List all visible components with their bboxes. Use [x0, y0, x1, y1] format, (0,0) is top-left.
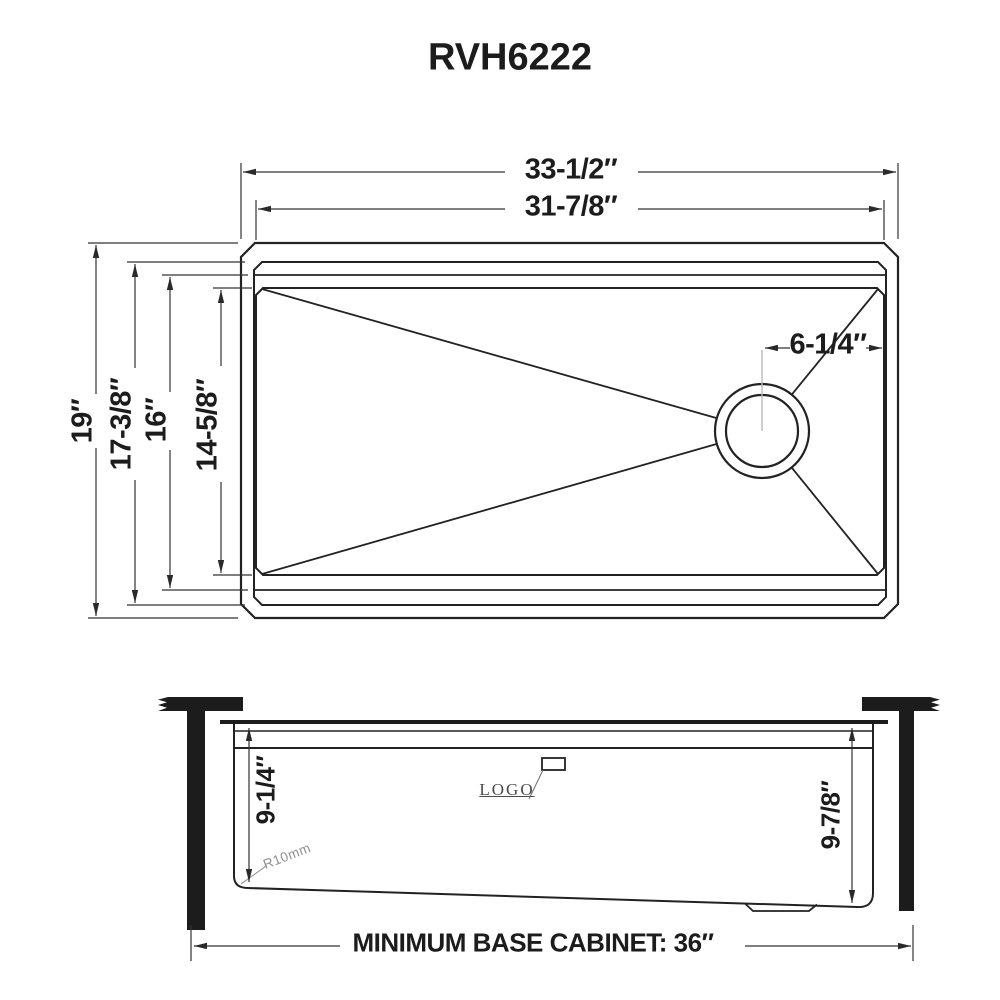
model-number: RVH6222: [428, 37, 592, 80]
top-view: [241, 243, 898, 618]
logo-label: LOGO: [479, 780, 534, 800]
sink-rim-side: [220, 720, 888, 724]
dim-bowl-depth: 14-5/8″: [192, 379, 225, 472]
dim-outer-depth: 19″: [67, 399, 100, 444]
countertop-left: [158, 697, 243, 711]
cabinet-wall-right: [899, 711, 914, 911]
dim-bowl-depth-left: 9-1/4″: [251, 756, 282, 825]
cabinet-wall-left: [187, 711, 205, 930]
logo-plate: [542, 758, 565, 770]
sink-dimension-diagram: RVH6222 33-1/2″ 31-7/8″ 19″ 17-3/8″ 16″ …: [0, 0, 1000, 1000]
countertop-right: [862, 697, 940, 711]
dim-bowl-depth-right: 9-7/8″: [816, 781, 847, 850]
dim-inner-width: 31-7/8″: [525, 191, 618, 224]
dim-ledge-depth: 16″: [141, 398, 174, 443]
dim-outer-width: 33-1/2″: [525, 154, 618, 187]
dim-rim-depth: 17-3/8″: [106, 378, 139, 471]
dim-drain-offset: 6-1/4″: [790, 329, 867, 362]
sink-body-side: [234, 724, 873, 907]
drawing-canvas: [0, 0, 1000, 1000]
radius-leader-line: [241, 866, 266, 884]
base-cabinet-note: MINIMUM BASE CABINET: 36″: [352, 928, 713, 959]
